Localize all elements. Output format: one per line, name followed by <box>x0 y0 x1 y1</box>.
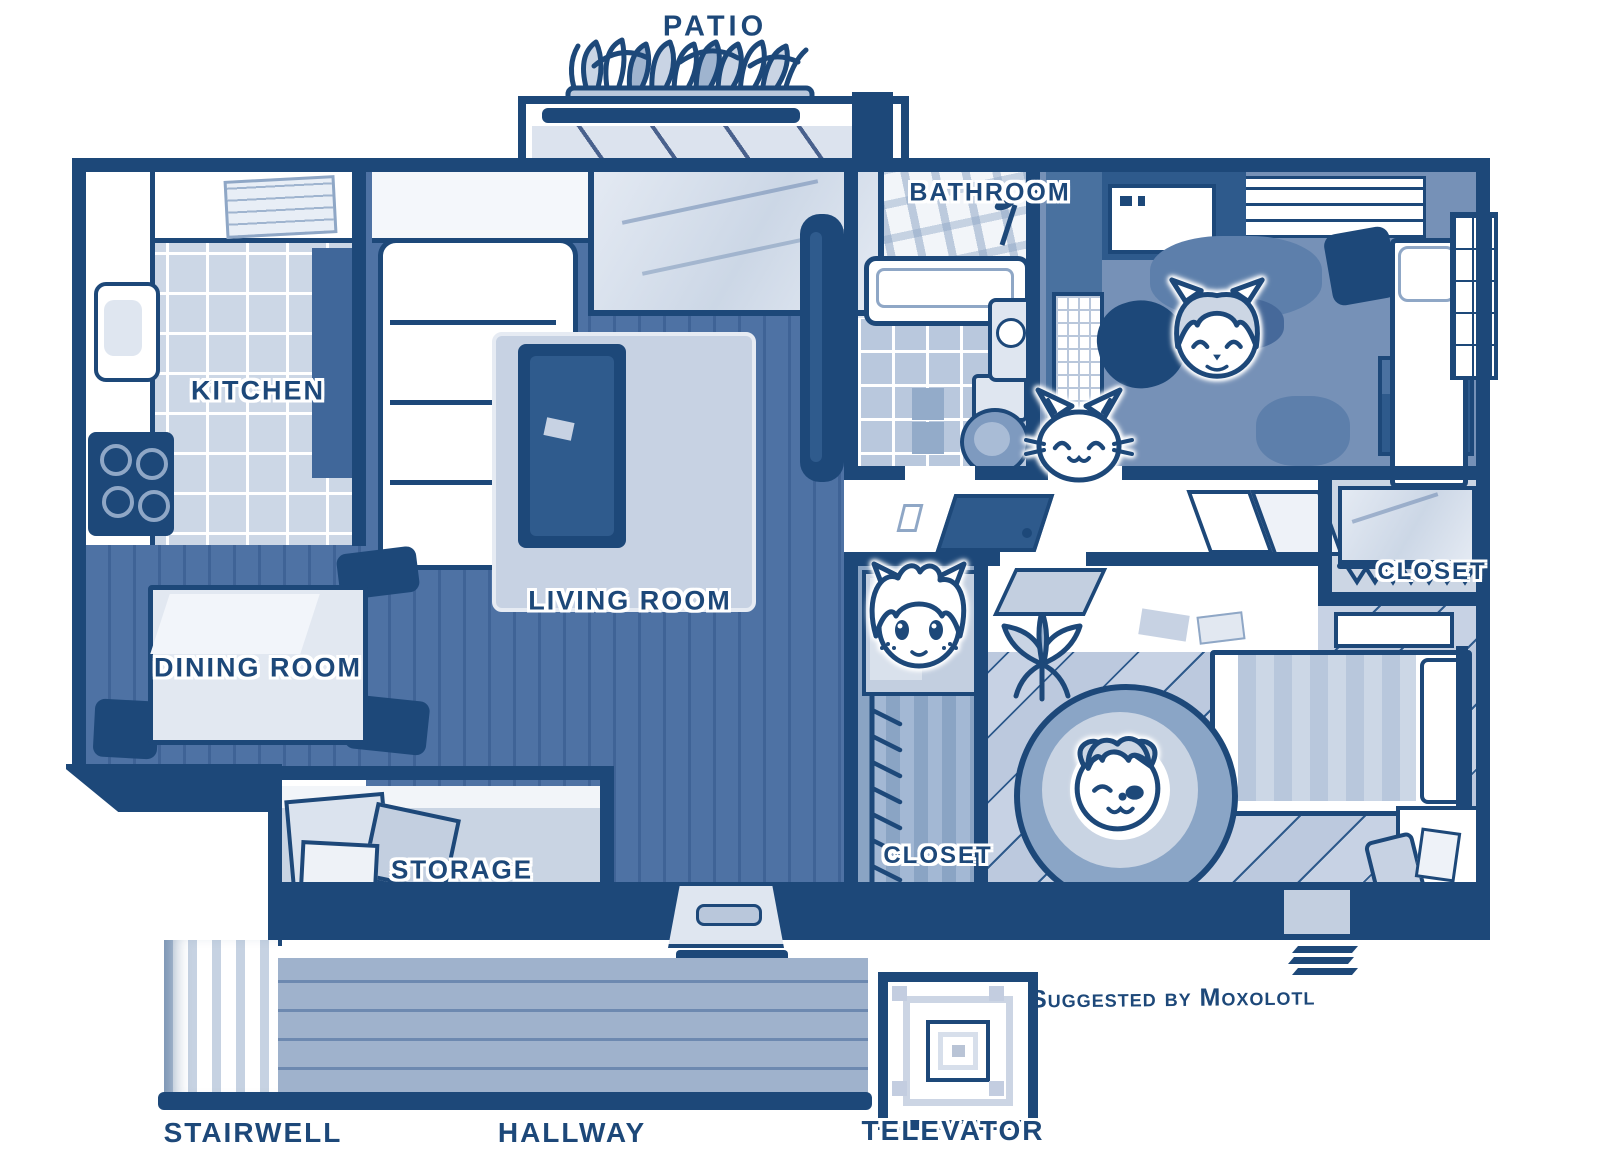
second-door-panel <box>1284 890 1350 934</box>
wall-shelf <box>1334 612 1454 648</box>
kitchen-peninsula-counter <box>312 248 352 478</box>
stove <box>88 432 174 536</box>
label-storage: STORAGE <box>391 855 533 886</box>
entry-door-handle <box>696 904 762 926</box>
stove-burner <box>138 490 170 522</box>
label-patio: PATIO <box>663 11 767 44</box>
stove-burner <box>102 486 134 518</box>
monitor-screen-icons <box>1138 196 1145 206</box>
televator-ring-mid <box>926 1020 990 1082</box>
patio-column <box>852 92 893 168</box>
hallway-floor <box>278 958 868 1096</box>
stove-burner <box>100 444 132 476</box>
potted-plant-icon <box>992 604 1092 709</box>
patio-deck-floor <box>532 126 856 160</box>
wall-left <box>72 158 86 790</box>
door-handle-dot <box>1022 528 1032 538</box>
label-living-room: LIVING ROOM <box>528 586 732 617</box>
bed-lower-blanket <box>1238 655 1416 801</box>
kitchen-sink-basin <box>104 300 142 356</box>
kitchen-window <box>224 175 338 239</box>
bed-upper-pillow <box>1398 246 1456 302</box>
televator-corner-pad <box>989 986 1004 1001</box>
wall-living-right-upper <box>844 158 858 478</box>
catgirl-sleeping-face-icon <box>1158 274 1276 392</box>
planter-shelf <box>542 108 800 123</box>
door-gap <box>1000 552 1086 566</box>
redpanda-winking-face-icon <box>1060 726 1176 842</box>
apartment-floorplan-illustration: PATIO BATHROOM KITCHEN CLOSET LIVING ROO… <box>0 0 1619 1170</box>
wall-closet-upper-bottom <box>1318 592 1490 606</box>
hallway-bottom-edge <box>158 1092 872 1110</box>
label-closet-upper: CLOSET <box>1377 558 1486 586</box>
label-televator: TELEVATOR <box>862 1115 1045 1147</box>
monitor-screen-icons <box>1120 196 1132 206</box>
televator-corner-pad <box>989 1081 1004 1096</box>
label-dining-room: DINING ROOM <box>154 653 362 684</box>
label-bathroom: BATHROOM <box>909 179 1070 208</box>
catgirl-awake-face-icon <box>854 556 984 686</box>
media-console-sheen <box>810 232 822 462</box>
desk-papers <box>1196 611 1245 644</box>
televator-corner-pad <box>892 986 907 1001</box>
wall-storage-top <box>268 766 614 780</box>
door-gap <box>905 466 975 480</box>
door-mat-icon <box>1282 942 1362 978</box>
bedroom-upper-window <box>1228 176 1426 238</box>
label-kitchen: KITCHEN <box>191 376 325 407</box>
sink-basin <box>996 318 1026 348</box>
wall-storage-right <box>600 766 614 886</box>
wall-lattice-window <box>1450 212 1498 380</box>
televator-corner-pad <box>892 1081 907 1096</box>
dining-table-highlight <box>150 594 319 654</box>
dark-tile <box>912 422 944 454</box>
media-console <box>800 214 844 482</box>
toilet-seat <box>974 422 1010 456</box>
kitten-face-icon <box>1024 384 1134 484</box>
dark-tile <box>912 388 944 420</box>
bed-headboard <box>1456 646 1468 808</box>
wall-right <box>1476 158 1490 940</box>
bedroom-upper-chair <box>1322 225 1400 307</box>
sofa-cushion-line <box>390 320 556 325</box>
sofa-table <box>372 172 590 243</box>
label-hallway: HALLWAY <box>498 1117 646 1149</box>
label-closet-lower: CLOSET <box>883 842 992 870</box>
televator-ring-inner <box>938 1032 978 1070</box>
televator-center <box>952 1045 965 1057</box>
open-book <box>1415 827 1462 882</box>
label-stairwell: STAIRWELL <box>164 1117 343 1149</box>
wall-kitchen-living <box>352 158 366 546</box>
closet-upper-glass-shelf <box>1338 486 1476 564</box>
clothes-clutter <box>1256 396 1350 466</box>
wall-corridor-closet <box>1318 466 1332 606</box>
stove-burner <box>136 448 168 480</box>
door-slab <box>936 494 1055 552</box>
wall-top <box>72 158 1490 172</box>
coffee-table-top <box>530 356 614 536</box>
stairwell-floor <box>164 940 278 1096</box>
credit-text: Suggested by Moxolotl <box>1030 983 1316 1015</box>
